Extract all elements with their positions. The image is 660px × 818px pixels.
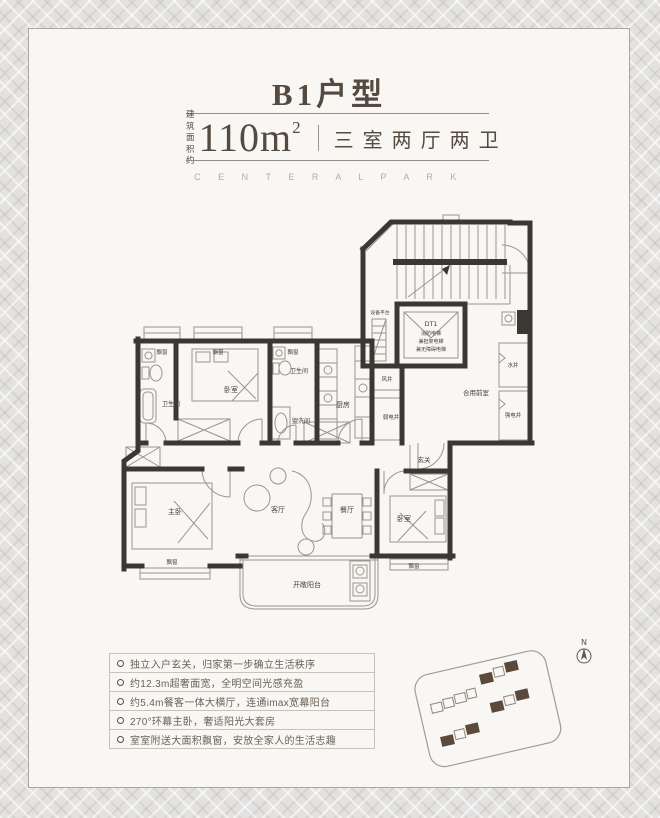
area-prefix: 建 筑 面积约 <box>186 109 195 166</box>
building-cluster-highlight-3 <box>439 722 482 747</box>
feature-row: 约5.4m餐客一体大横厅，连通imax宽幕阳台 <box>109 691 375 711</box>
feature-text: 约5.4m餐客一体大横厅，连通imax宽幕阳台 <box>130 694 330 709</box>
building-cluster-highlight-2 <box>488 688 531 713</box>
area-prefix-top: 建 筑 <box>186 109 195 132</box>
feature-text: 270°环幕主卧，奢适阳光大套房 <box>130 713 275 728</box>
bullet-ring-icon <box>117 698 124 705</box>
label-weak-electric-shaft: 弱电井 <box>383 413 400 421</box>
unit-layout-text: 三室两厅两卫 <box>334 124 508 153</box>
label-bathroom-1: 卫生间 <box>162 400 180 408</box>
feature-row: 约12.3m超奢面宽，全明空间光感充盈 <box>109 672 375 692</box>
label-bay-window-4: 飘窗 <box>166 558 178 566</box>
building-cluster-outline <box>429 688 478 713</box>
feature-text: 室室附送大面积飘窗，安放全家人的生活志趣 <box>130 732 336 747</box>
label-elevator-line2: 消防电梯 <box>421 330 441 337</box>
bullet-ring-icon <box>117 736 124 743</box>
label-living-room: 客厅 <box>271 505 285 514</box>
bullet-ring-icon <box>117 679 124 686</box>
area-value: 110m2 <box>199 118 301 158</box>
brand-caption: C E N T E R A L P A R K <box>29 172 629 182</box>
label-strong-electric-shaft: 强电井 <box>505 411 522 419</box>
floor-plan-svg: 卧室 卫生间 卫生间 盥洗间 厨房 风井 弱电井 水井 强电井 合用前室 设备平… <box>110 213 550 619</box>
label-entry: 玄关 <box>418 455 432 464</box>
feature-text: 约12.3m超奢面宽，全明空间光感充盈 <box>130 675 304 690</box>
vertical-divider <box>318 125 319 151</box>
label-bay-window-2: 飘窗 <box>212 348 224 356</box>
label-bedroom-top: 卧室 <box>224 385 238 394</box>
label-master-bedroom: 主卧 <box>168 507 182 516</box>
site-plan-svg: N <box>401 629 601 789</box>
label-bedroom-right: 卧室 <box>397 514 411 523</box>
site-boundary <box>412 648 564 770</box>
label-elevator-line3: 兼担架电梯 <box>418 338 443 345</box>
divider-top <box>186 113 489 114</box>
label-shared-front-room: 合用前室 <box>463 388 490 397</box>
label-elevator-line4: 兼无障碍电梯 <box>416 346 446 353</box>
building-cluster-highlight-1 <box>478 660 521 685</box>
area-superscript: 2 <box>292 118 301 137</box>
feature-row: 室室附送大面积飘窗，安放全家人的生活志趣 <box>109 729 375 749</box>
label-dining-room: 餐厅 <box>340 505 354 514</box>
label-bay-window-3: 飘窗 <box>287 348 299 356</box>
label-equipment-platform: 设备平台 <box>370 309 389 316</box>
bullet-ring-icon <box>117 717 124 724</box>
label-bay-window-5: 飘窗 <box>408 562 420 570</box>
bullet-ring-icon <box>117 660 124 667</box>
label-bay-window-1: 飘窗 <box>156 348 168 356</box>
label-open-balcony: 开敞阳台 <box>293 580 321 589</box>
feature-row: 独立入户玄关，归家第一步确立生活秩序 <box>109 653 375 673</box>
divider-bottom <box>186 160 489 161</box>
feature-text: 独立入户玄关，归家第一步确立生活秩序 <box>130 656 315 671</box>
label-bathroom-2: 卫生间 <box>290 367 308 375</box>
feature-list: 独立入户玄关，归家第一步确立生活秩序 约12.3m超奢面宽，全明空间光感充盈 约… <box>109 653 375 749</box>
compass-north-label: N <box>581 638 587 647</box>
label-kitchen: 厨房 <box>336 400 350 409</box>
poster-canvas: B1户型 建 筑 面积约 110m2 三室两厅两卫 C E N T E R A … <box>0 0 660 818</box>
page-title: B1户型 <box>29 69 629 114</box>
label-wind-shaft: 风井 <box>381 375 393 383</box>
poster-card: B1户型 建 筑 面积约 110m2 三室两厅两卫 C E N T E R A … <box>28 28 630 788</box>
label-water-shaft: 水井 <box>507 361 519 369</box>
area-spec-row: 建 筑 面积约 110m2 三室两厅两卫 <box>186 117 489 159</box>
floor-plan: 卧室 卫生间 卫生间 盥洗间 厨房 风井 弱电井 水井 强电井 合用前室 设备平… <box>110 213 550 619</box>
area-prefix-bottom: 面积约 <box>186 132 195 166</box>
feature-row: 270°环幕主卧，奢适阳光大套房 <box>109 710 375 730</box>
compass-icon: N <box>577 638 591 663</box>
label-washroom: 盥洗间 <box>292 417 310 425</box>
site-plan: N <box>401 629 601 789</box>
label-elevator-name: DT1 <box>424 320 437 328</box>
